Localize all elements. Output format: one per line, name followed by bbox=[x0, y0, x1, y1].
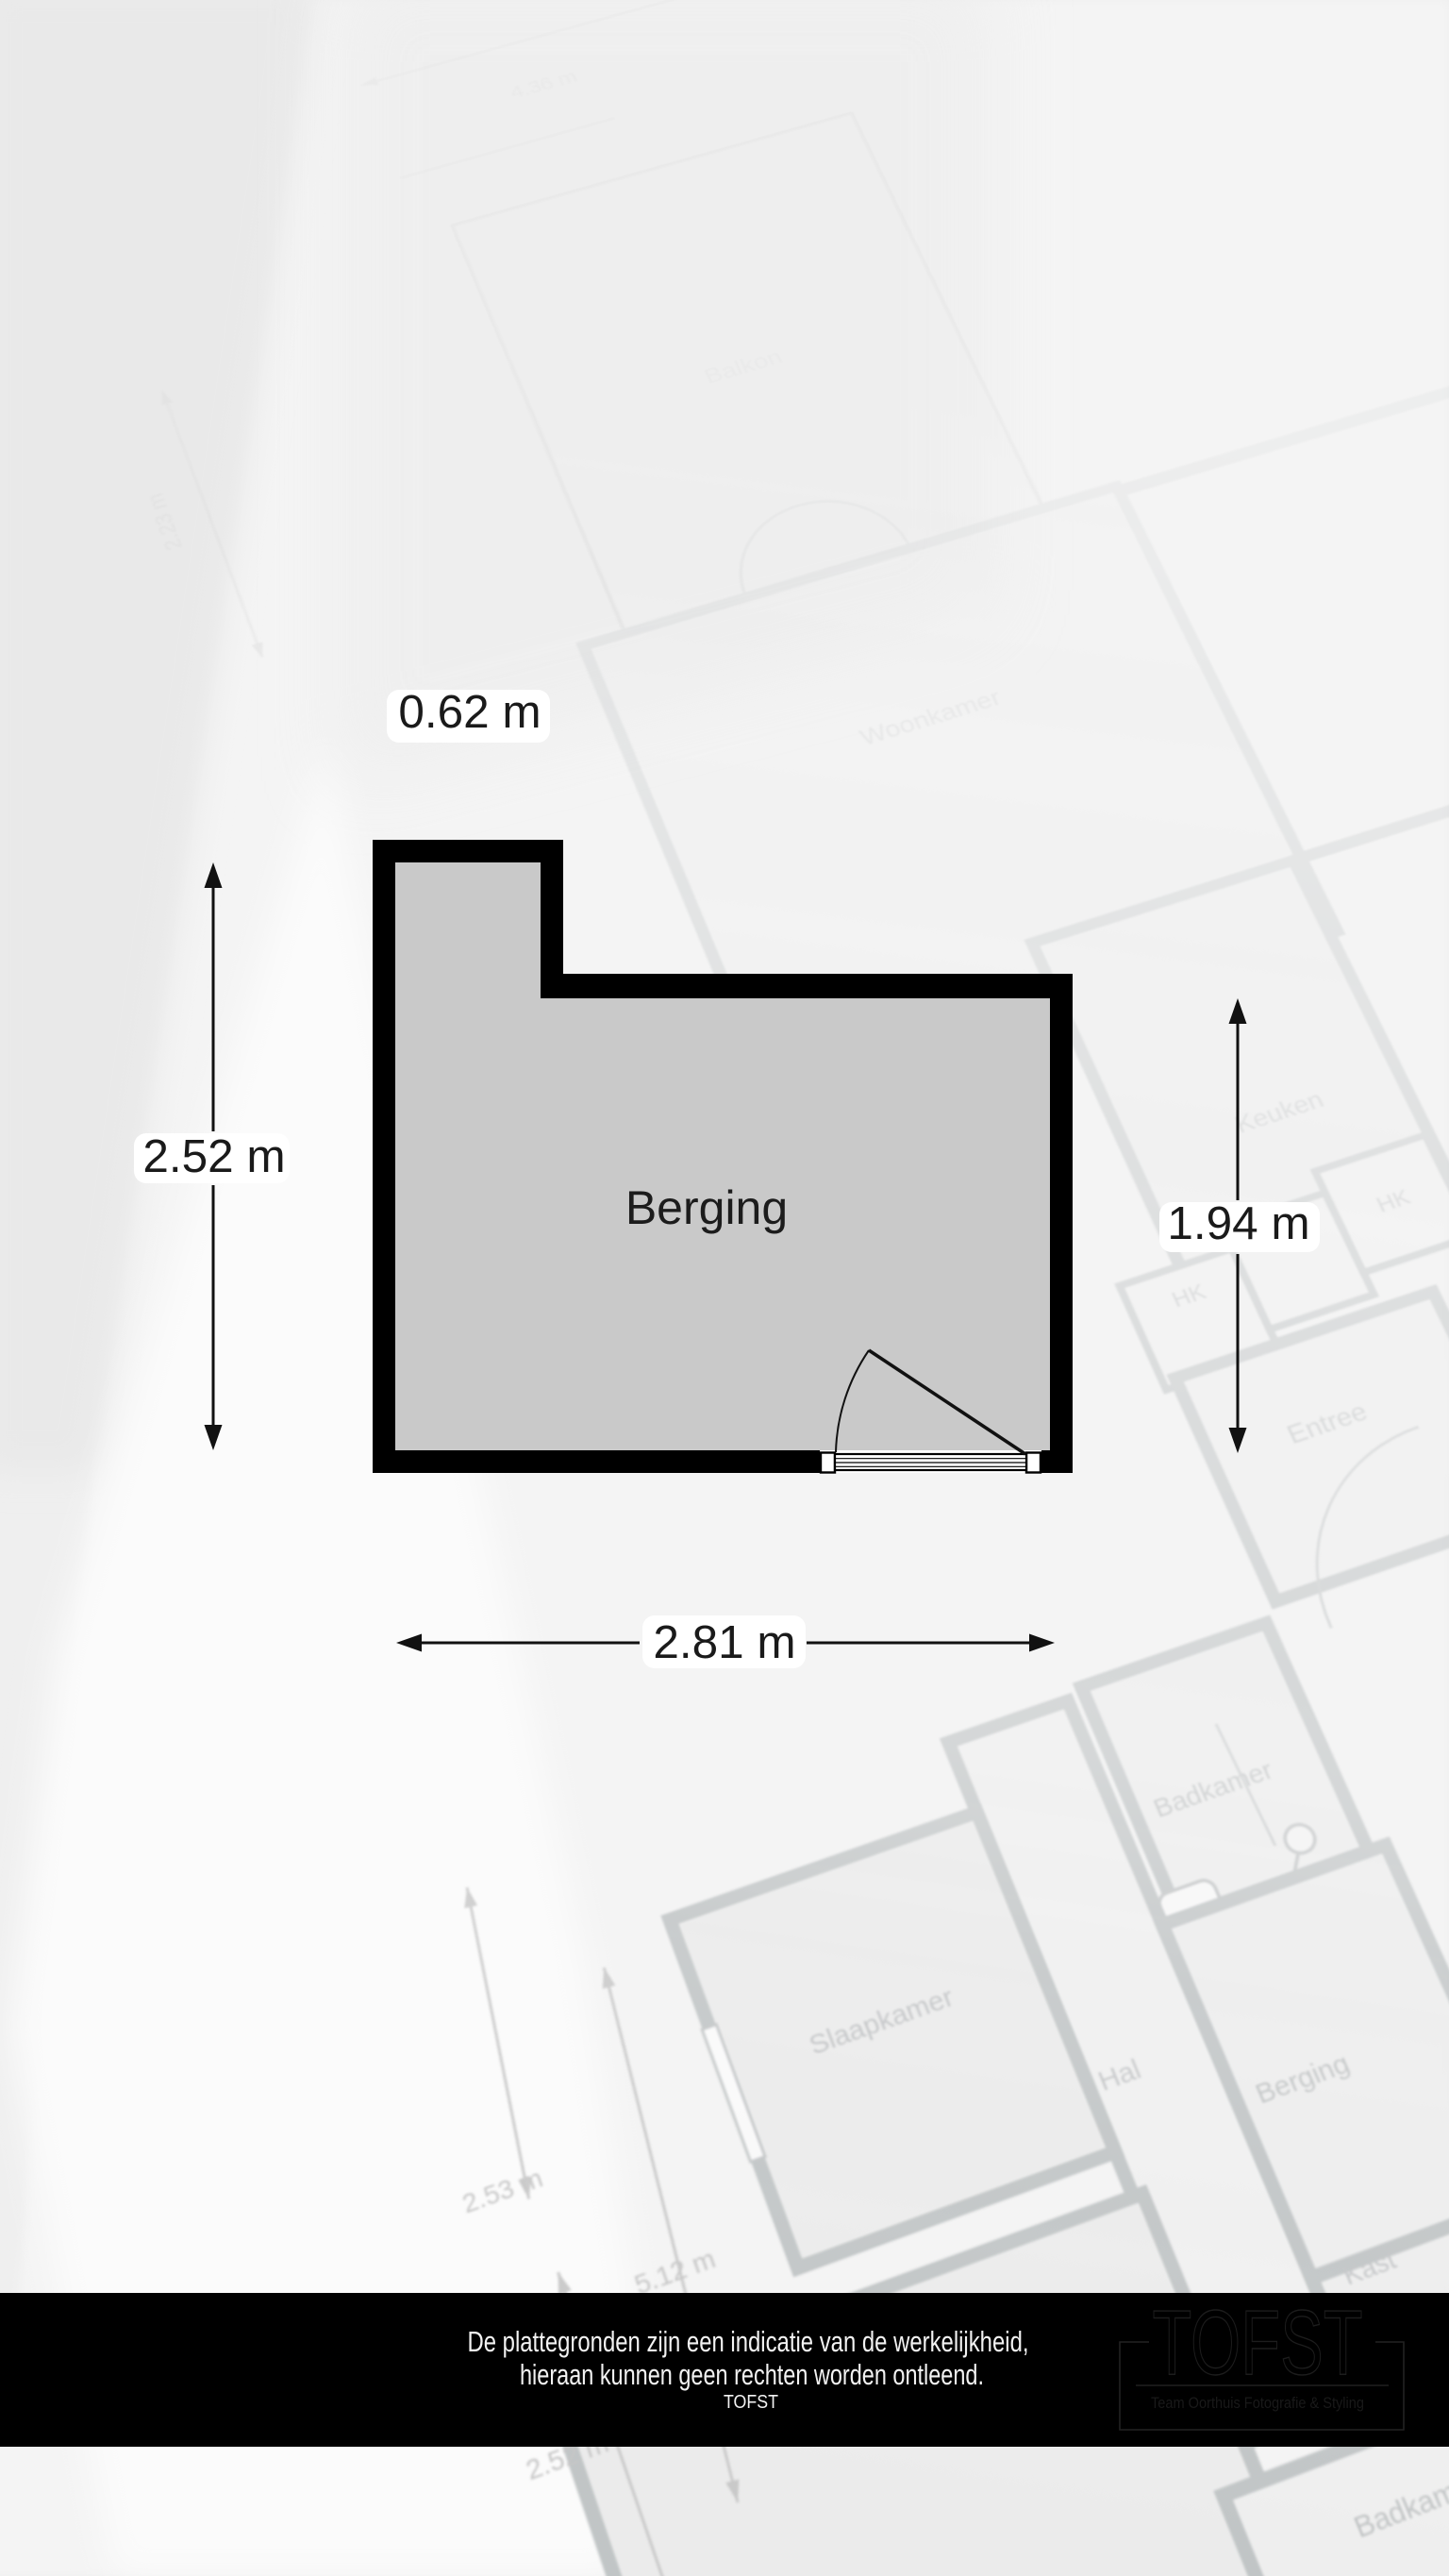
svg-text:TOFST: TOFST bbox=[1153, 2291, 1363, 2394]
svg-text:De plattegronden zijn een indi: De plattegronden zijn een indicatie van … bbox=[468, 2325, 1029, 2358]
svg-text:hieraan kunnen geen rechten wo: hieraan kunnen geen rechten worden ontle… bbox=[520, 2358, 984, 2391]
svg-text:1.94 m: 1.94 m bbox=[1167, 1197, 1309, 1249]
svg-text:Team Oorthuis Fotografie & Sty: Team Oorthuis Fotografie & Styling bbox=[1151, 2395, 1364, 2412]
svg-text:2.81 m: 2.81 m bbox=[653, 1616, 795, 1668]
svg-text:TOFST: TOFST bbox=[724, 2392, 778, 2413]
svg-text:Berging: Berging bbox=[625, 1181, 788, 1234]
svg-text:2.52 m: 2.52 m bbox=[142, 1130, 285, 1182]
svg-text:0.62 m: 0.62 m bbox=[398, 686, 541, 738]
